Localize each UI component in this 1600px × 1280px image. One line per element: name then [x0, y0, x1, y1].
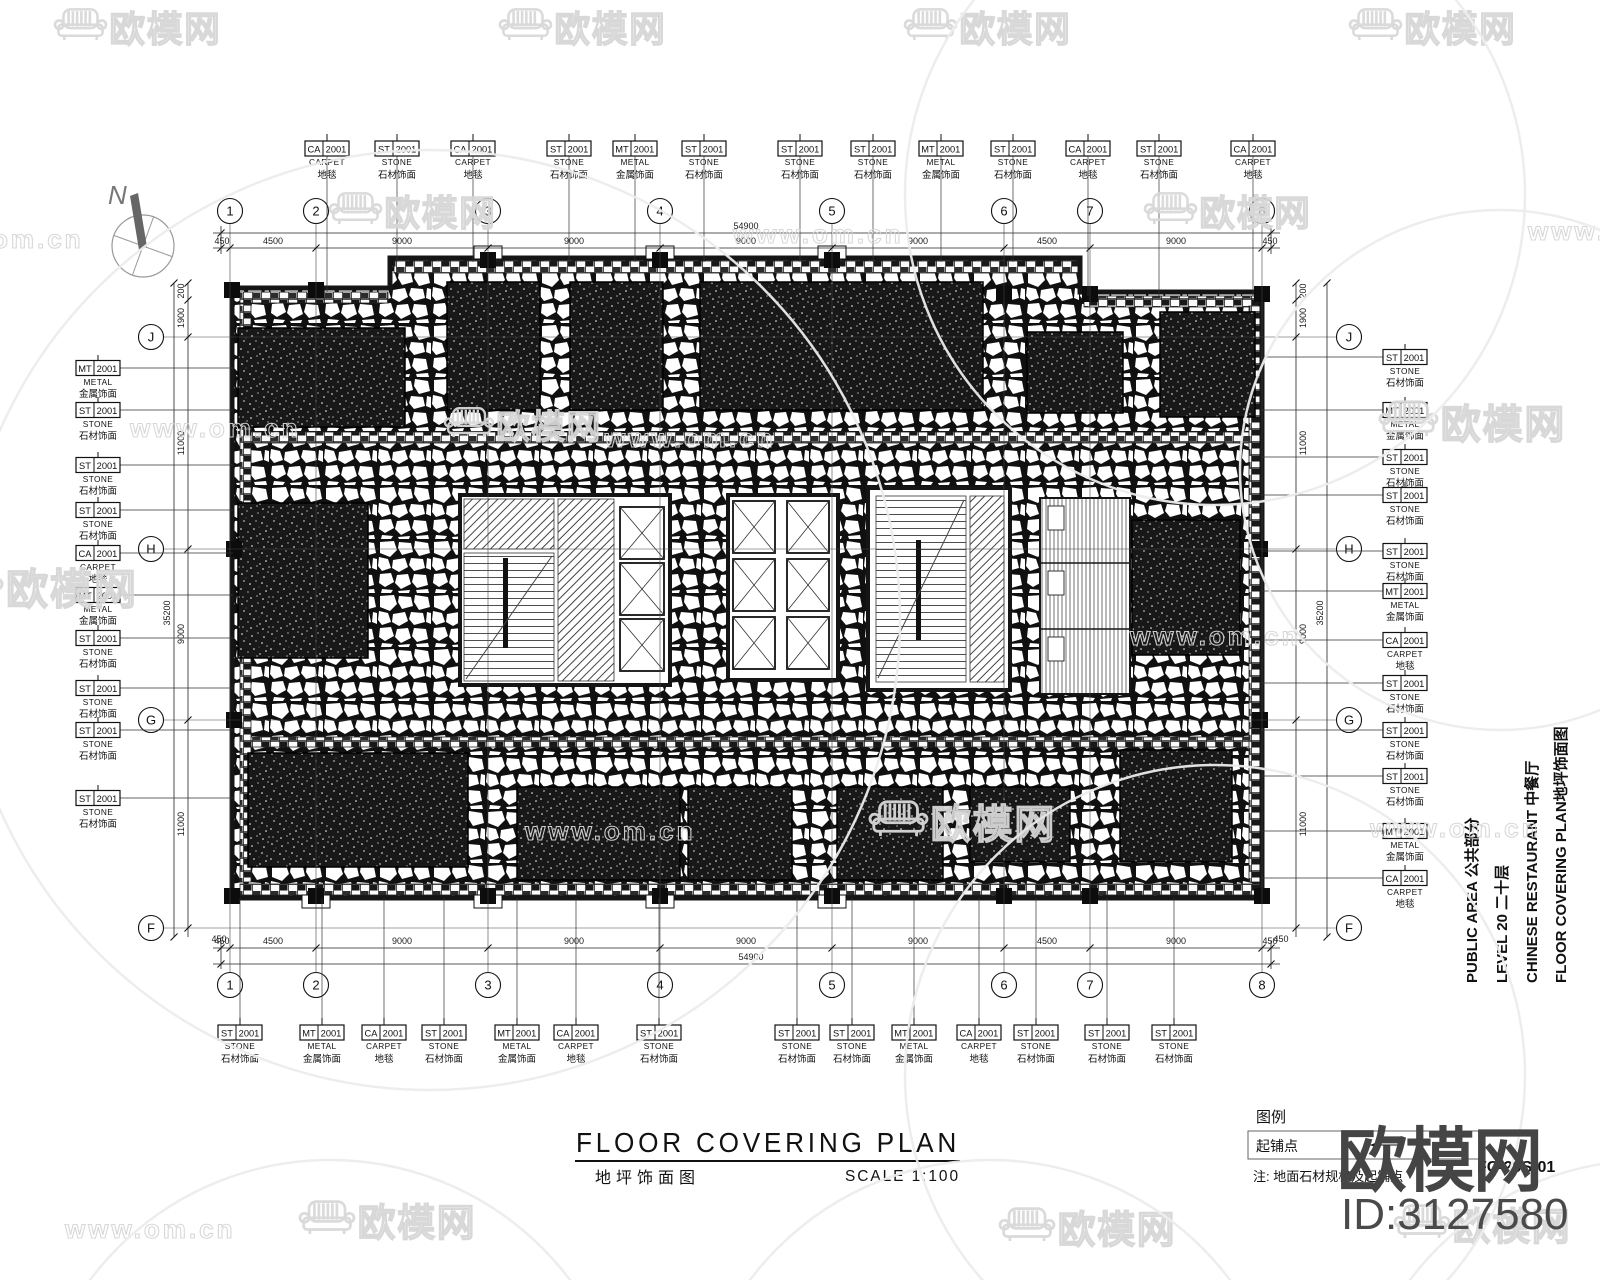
- material-tag-number: 2001: [1252, 145, 1273, 155]
- material-tag-cn: 石材饰面: [994, 169, 1032, 181]
- material-tag-code: ST: [79, 406, 91, 416]
- material-tag-cn: 地毯: [1243, 169, 1263, 181]
- dim-label: 9000: [564, 236, 584, 246]
- dim-label: 9000: [392, 236, 412, 246]
- side-title: LEVEL 20 二十层: [1493, 865, 1511, 983]
- dim-label: 9000: [908, 236, 928, 246]
- watermark-url: www.om.cn: [1369, 813, 1541, 843]
- material-tag-en: STONE: [382, 157, 412, 167]
- material-tag-en: CARPET: [1235, 157, 1271, 167]
- elevator-cell: [733, 501, 775, 553]
- material-tag-code: ST: [1140, 145, 1152, 155]
- material-tag-number: 2001: [851, 1029, 872, 1039]
- material-tag-number: 2001: [978, 1029, 999, 1039]
- side-title: FLOOR COVERING PLAN地坪饰面图: [1552, 726, 1570, 983]
- material-tag-en: STONE: [837, 1041, 867, 1051]
- dim-label: 9000: [908, 936, 928, 946]
- elevator-cell: [733, 617, 775, 669]
- material-tag-code: ST: [994, 145, 1006, 155]
- material-tag-code: CA: [79, 549, 93, 559]
- material-tag-number: 2001: [1404, 679, 1425, 689]
- material-tag-en: CARPET: [455, 157, 491, 167]
- dim-label: 450: [1262, 236, 1277, 246]
- dim-label: 9000: [392, 936, 412, 946]
- grid-bubble-label: J: [1346, 330, 1353, 345]
- material-tag-code: CA: [1386, 874, 1400, 884]
- material-tag-number: 2001: [97, 794, 118, 804]
- material-tag: ST2001STONE石材饰面: [1261, 482, 1427, 527]
- watermark-logo: [0, 566, 138, 613]
- dim-label: 200: [176, 283, 186, 298]
- material-tag-en: STONE: [858, 157, 888, 167]
- elevator-cell: [620, 619, 664, 671]
- material-tag-cn: 石材饰面: [1140, 169, 1178, 181]
- material-tag-cn: 石材饰面: [1386, 796, 1424, 808]
- material-tag: MT2001METAL金属饰面: [495, 898, 539, 1065]
- material-tag-number: 2001: [1404, 491, 1425, 501]
- material-tag-en: METAL: [899, 1041, 928, 1051]
- dim-label: 4500: [263, 936, 283, 946]
- material-tag-en: METAL: [620, 157, 649, 167]
- material-tag-number: 2001: [97, 726, 118, 736]
- material-tag-cn: 石材饰面: [79, 818, 117, 830]
- material-tag-code: ST: [833, 1029, 845, 1039]
- material-tag-en: STONE: [1021, 1041, 1051, 1051]
- north-needle: [130, 193, 147, 250]
- watermark-url: www.om.cn: [64, 1214, 236, 1244]
- material-tag-en: STONE: [83, 697, 113, 707]
- dim-label: 450: [214, 236, 229, 246]
- grid-bubble-label: 7: [1086, 204, 1093, 219]
- material-tag-en: STONE: [1390, 466, 1420, 476]
- dim-label: 9000: [736, 936, 756, 946]
- material-tag-cn: 石材饰面: [685, 169, 723, 181]
- watermark-url: www.om.cn: [1129, 621, 1301, 651]
- grid-bubble-label: F: [147, 921, 155, 936]
- material-tag-number: 2001: [1404, 772, 1425, 782]
- material-tag: ST2001STONE石材饰面: [1014, 898, 1058, 1065]
- watermark-logo: [905, 9, 1072, 49]
- dim-label: 9000: [1166, 236, 1186, 246]
- material-tag-number: 2001: [634, 145, 655, 155]
- material-tag-code: CA: [1386, 636, 1400, 646]
- side-title: CHINESE RESTAURANT 中餐厅: [1523, 761, 1541, 983]
- legend-heading: 图例: [1256, 1109, 1286, 1126]
- material-tag-cn: 石材饰面: [833, 1053, 871, 1065]
- grid-bubble-label: F: [1345, 921, 1353, 936]
- material-tag-cn: 石材饰面: [854, 169, 892, 181]
- material-tag-code: ST: [778, 1029, 790, 1039]
- material-tag: ST2001STONE石材饰面: [1137, 134, 1181, 296]
- material-tag: CA2001CARPET地毯: [1261, 865, 1427, 910]
- watermark-url: www.om.cn: [524, 816, 696, 846]
- dim-total-label: 35200: [162, 600, 172, 625]
- material-tag-en: STONE: [554, 157, 584, 167]
- material-tag-en: METAL: [1390, 600, 1419, 610]
- material-tag-cn: 金属饰面: [922, 169, 960, 181]
- material-tag-cn: 石材饰面: [1155, 1053, 1193, 1065]
- material-tag-en: CARPET: [1387, 649, 1423, 659]
- material-tag-en: STONE: [1144, 157, 1174, 167]
- material-tag-code: ST: [1386, 453, 1398, 463]
- material-tag-en: STONE: [83, 474, 113, 484]
- carpet-room: [688, 787, 792, 880]
- material-tag: ST2001STONE石材饰面: [991, 134, 1035, 262]
- watermark-url: www.om.cn: [604, 423, 776, 453]
- material-tag-cn: 金属饰面: [303, 1053, 341, 1065]
- carpet-room: [570, 282, 663, 410]
- material-tag-code: MT: [894, 1029, 908, 1039]
- dim-label: 11000: [1298, 431, 1308, 455]
- material-tag: ST2001STONE石材饰面: [775, 898, 819, 1065]
- material-tag-code: ST: [1386, 353, 1398, 363]
- material-tag-cn: 石材饰面: [79, 485, 117, 497]
- watermark-url: www.om.cn: [129, 413, 301, 443]
- dim-label: 450: [1273, 934, 1288, 944]
- material-tag-number: 2001: [796, 1029, 817, 1039]
- dim-label: 1900: [176, 308, 186, 328]
- material-tag-number: 2001: [1012, 145, 1033, 155]
- material-tag-en: STONE: [1390, 785, 1420, 795]
- material-tag-number: 2001: [913, 1029, 934, 1039]
- material-tag-number: 2001: [1404, 587, 1425, 597]
- watermark-circle: [0, 1160, 30, 1280]
- dim-label: 4500: [263, 236, 283, 246]
- material-tag-en: STONE: [998, 157, 1028, 167]
- material-tag-number: 2001: [321, 1029, 342, 1039]
- material-tag-en: STONE: [83, 419, 113, 429]
- cad-floor-plan-sheet: 欧模网: [0, 0, 1600, 1280]
- material-tag-en: CARPET: [961, 1041, 997, 1051]
- material-tag-number: 2001: [1035, 1029, 1056, 1039]
- material-tag-cn: 石材饰面: [1017, 1053, 1055, 1065]
- dim-label: 11000: [176, 812, 186, 836]
- watermark-url: www.om.cn: [1527, 216, 1600, 246]
- grid-bubble-label: J: [148, 330, 155, 345]
- material-tag-cn: 地毯: [317, 169, 337, 181]
- material-tag-number: 2001: [97, 549, 118, 559]
- wc-block: [1040, 498, 1130, 694]
- material-tag-number: 2001: [1404, 874, 1425, 884]
- material-tag: ST2001STONE石材饰面: [682, 134, 726, 262]
- material-tag-code: ST: [1386, 547, 1398, 557]
- material-tag-code: ST: [221, 1029, 233, 1039]
- material-tag-number: 2001: [1158, 145, 1179, 155]
- grid-bubble-label: 4: [656, 978, 663, 993]
- material-tag-en: STONE: [1390, 560, 1420, 570]
- material-tag: ST2001STONE石材饰面: [1261, 763, 1427, 808]
- material-tag-cn: 金属饰面: [498, 1053, 536, 1065]
- material-tag-cn: 石材饰面: [1386, 377, 1424, 389]
- material-tag-en: CARPET: [558, 1041, 594, 1051]
- watermark-logo: [1000, 1209, 1176, 1252]
- grid-bubble-label: H: [1344, 542, 1353, 557]
- material-tag-cn: 金属饰面: [1386, 611, 1424, 623]
- material-tag-code: ST: [79, 794, 91, 804]
- side-titles: PUBLIC AREA 公共部分 LEVEL 20 二十层 CHINESE RE…: [1463, 726, 1570, 983]
- material-tag-code: CA: [365, 1029, 379, 1039]
- material-tag-number: 2001: [703, 145, 724, 155]
- material-tag-cn: 石材饰面: [781, 169, 819, 181]
- sheet-subtitle-cn: 地坪饰面图: [595, 1169, 700, 1187]
- material-tag-number: 2001: [1087, 145, 1108, 155]
- material-tag-cn: 金属饰面: [616, 169, 654, 181]
- material-tag-code: MT: [302, 1029, 316, 1039]
- material-tag-code: ST: [854, 145, 866, 155]
- material-tag-cn: 石材饰面: [1386, 750, 1424, 762]
- elevator-cell: [733, 559, 775, 611]
- material-tag-en: CARPET: [1070, 157, 1106, 167]
- material-tag-en: STONE: [1092, 1041, 1122, 1051]
- material-tag-en: STONE: [83, 739, 113, 749]
- dim-label: 450: [211, 934, 226, 944]
- material-tag-number: 2001: [97, 461, 118, 471]
- material-tag-cn: 石材饰面: [640, 1053, 678, 1065]
- carpet-room: [1027, 332, 1123, 413]
- material-tag-code: ST: [550, 145, 562, 155]
- dim-label: 4500: [1037, 936, 1057, 946]
- material-tag-en: STONE: [429, 1041, 459, 1051]
- material-tag-code: ST: [1386, 726, 1398, 736]
- grid-bubble-label: 2: [312, 204, 319, 219]
- dim-total-label: 35200: [1315, 600, 1325, 625]
- carpet-room: [238, 503, 368, 658]
- material-tag-code: ST: [1017, 1029, 1029, 1039]
- material-tag: ST2001STONE石材饰面: [547, 134, 591, 262]
- material-tag-number: 2001: [1404, 547, 1425, 557]
- material-tag-cn: 石材饰面: [378, 169, 416, 181]
- dim-label: 11000: [1298, 812, 1308, 836]
- material-tag-cn: 金属饰面: [1386, 851, 1424, 863]
- material-tag: ST2001STONE石材饰面: [76, 497, 233, 542]
- hatch-room: [970, 496, 1004, 682]
- material-tag-number: 2001: [1404, 353, 1425, 363]
- material-tag-en: CARPET: [1387, 887, 1423, 897]
- material-tag-code: ST: [685, 145, 697, 155]
- material-tag-number: 2001: [1173, 1029, 1194, 1039]
- material-tag-code: ST: [1386, 772, 1398, 782]
- material-tag-number: 2001: [326, 145, 347, 155]
- material-tag-code: MT: [497, 1029, 511, 1039]
- scale-label: SCALE 1:100: [845, 1168, 960, 1185]
- grid-bubble-label: 8: [1258, 978, 1265, 993]
- title-block: FLOOR COVERING PLAN 地坪饰面图 SCALE 1:100: [575, 1127, 960, 1187]
- elevator-cell: [620, 507, 664, 559]
- material-tag-code: ST: [425, 1029, 437, 1039]
- material-tag-cn: 石材饰面: [425, 1053, 463, 1065]
- material-tag-en: STONE: [644, 1041, 674, 1051]
- material-tag: ST2001STONE石材饰面: [1152, 898, 1196, 1065]
- material-tag-code: MT: [921, 145, 935, 155]
- material-tag-en: METAL: [502, 1041, 531, 1051]
- material-tag: CA2001CARPET地毯: [554, 898, 598, 1065]
- material-tag-number: 2001: [97, 684, 118, 694]
- material-tag-number: 2001: [799, 145, 820, 155]
- hatch-room: [464, 499, 554, 549]
- material-tag-code: ST: [79, 506, 91, 516]
- material-tag-en: STONE: [83, 807, 113, 817]
- material-tag-en: STONE: [1390, 504, 1420, 514]
- grid-bubble-label: 3: [484, 978, 491, 993]
- material-tag-number: 2001: [575, 1029, 596, 1039]
- elevator-cell: [787, 559, 829, 611]
- material-tag-number: 2001: [940, 145, 961, 155]
- grid-bubble-label: 6: [1000, 204, 1007, 219]
- material-tag-number: 2001: [97, 406, 118, 416]
- material-tag-code: ST: [79, 461, 91, 471]
- material-tag-cn: 石材饰面: [79, 750, 117, 762]
- material-tag-en: METAL: [83, 377, 112, 387]
- material-tag-en: METAL: [926, 157, 955, 167]
- grid-bubble-label: 5: [828, 978, 835, 993]
- material-tag-en: STONE: [1390, 366, 1420, 376]
- material-tag-en: STONE: [83, 519, 113, 529]
- carpet-room: [248, 753, 468, 867]
- material-tag-code: CA: [308, 145, 322, 155]
- material-tag: MT2001METAL金属饰面: [76, 355, 233, 400]
- grid-bubble-label: 6: [1000, 978, 1007, 993]
- carpet-room: [447, 282, 540, 410]
- material-tag-code: CA: [960, 1029, 974, 1039]
- grid-bubble-label: 1: [226, 204, 233, 219]
- watermark-circle: [690, 1160, 1290, 1280]
- watermark-logo: [330, 193, 497, 233]
- legend-start-point: 起铺点: [1256, 1138, 1298, 1154]
- material-tag: ST2001STONE石材饰面: [76, 452, 233, 497]
- material-tag-code: MT: [1385, 587, 1399, 597]
- material-tag-code: ST: [1386, 491, 1398, 501]
- grid-bubble-label: G: [1344, 713, 1354, 728]
- material-tag-number: 2001: [97, 506, 118, 516]
- watermark-logo: [55, 9, 222, 49]
- material-tag-number: 2001: [1404, 636, 1425, 646]
- elevator-cell: [787, 501, 829, 553]
- dim-label: 1900: [1298, 308, 1308, 328]
- material-tag-number: 2001: [97, 634, 118, 644]
- north-label: N: [108, 180, 127, 210]
- material-tag-code: ST: [1155, 1029, 1167, 1039]
- material-tag-code: ST: [1088, 1029, 1100, 1039]
- material-tag-cn: 地毯: [374, 1053, 394, 1065]
- grid-bubble-label: 1: [226, 978, 233, 993]
- grid-bubble-label: H: [146, 542, 155, 557]
- material-tag-cn: 地毯: [1078, 169, 1098, 181]
- dim-label: 9000: [564, 936, 584, 946]
- material-tag-number: 2001: [97, 364, 118, 374]
- grid-bubble-label: 2: [312, 978, 319, 993]
- material-tag-cn: 地毯: [1395, 898, 1415, 910]
- grid-bubble-label: G: [146, 713, 156, 728]
- material-tag-cn: 地毯: [463, 169, 483, 181]
- site-watermark: 欧模网 ID:3127580: [1337, 1122, 1569, 1239]
- material-tag: CA2001CARPET地毯: [362, 898, 406, 1065]
- watermark-url: www.om.cn: [732, 219, 904, 249]
- material-tag-number: 2001: [516, 1029, 537, 1039]
- material-tag-code: ST: [79, 726, 91, 736]
- plan-body: [224, 246, 1270, 908]
- material-tag-cn: 石材饰面: [778, 1053, 816, 1065]
- material-tag-en: STONE: [1390, 692, 1420, 702]
- material-tag-code: ST: [781, 145, 793, 155]
- sheet-title: FLOOR COVERING PLAN: [576, 1127, 960, 1158]
- material-tag-number: 2001: [239, 1029, 260, 1039]
- material-tag-number: 2001: [568, 145, 589, 155]
- material-tag-code: MT: [615, 145, 629, 155]
- material-tag-en: METAL: [307, 1041, 336, 1051]
- material-tag-number: 2001: [1106, 1029, 1127, 1039]
- material-tag-code: MT: [78, 364, 92, 374]
- elevator-cell: [787, 617, 829, 669]
- material-tag-code: CA: [557, 1029, 571, 1039]
- column: [224, 282, 240, 298]
- material-tag-code: ST: [1386, 679, 1398, 689]
- material-tag-number: 2001: [872, 145, 893, 155]
- watermark-logo: [300, 1202, 476, 1245]
- material-tag: ST2001STONE石材饰面: [1261, 444, 1427, 489]
- material-tag-en: STONE: [785, 157, 815, 167]
- grid-bubble-label: 5: [828, 204, 835, 219]
- material-tag-cn: 石材饰面: [1088, 1053, 1126, 1065]
- watermark-url-short: om.cn: [0, 224, 84, 254]
- material-tag: ST2001STONE石材饰面: [422, 898, 466, 1065]
- elevator-cell: [620, 563, 664, 615]
- carpet-room: [1160, 312, 1255, 417]
- material-tag-en: STONE: [689, 157, 719, 167]
- material-tag-en: CARPET: [366, 1041, 402, 1051]
- column: [224, 888, 240, 904]
- material-tag-en: STONE: [1390, 739, 1420, 749]
- material-tag-number: 2001: [443, 1029, 464, 1039]
- watermark-logo: [500, 9, 667, 49]
- material-tag-cn: 金属饰面: [895, 1053, 933, 1065]
- material-tag-code: ST: [79, 684, 91, 694]
- material-tag-cn: 石材饰面: [79, 658, 117, 670]
- material-tag-en: STONE: [1159, 1041, 1189, 1051]
- material-tag-number: 2001: [1404, 453, 1425, 463]
- material-tag-cn: 地毯: [969, 1053, 989, 1065]
- dim-label: 9000: [1166, 936, 1186, 946]
- site-watermark-id: ID:3127580: [1341, 1190, 1569, 1239]
- hatch-room: [558, 499, 614, 681]
- material-tag-en: STONE: [782, 1041, 812, 1051]
- material-tag-cn: 石材饰面: [1386, 515, 1424, 527]
- material-tag-en: STONE: [83, 647, 113, 657]
- dim-label: 9000: [176, 624, 186, 644]
- material-tag-number: 2001: [1404, 726, 1425, 736]
- material-tag: MT2001METAL金属饰面: [892, 898, 936, 1065]
- material-tag: ST2001STONE石材饰面: [1261, 344, 1427, 389]
- floor-plan-drawing: 欧模网: [0, 0, 1600, 1280]
- watermark-logo: [1350, 9, 1517, 49]
- material-tag: ST2001STONE石材饰面: [76, 785, 233, 830]
- material-tag-number: 2001: [383, 1029, 404, 1039]
- material-tag: ST2001STONE石材饰面: [76, 625, 233, 670]
- watermark-logo: [1145, 193, 1312, 233]
- material-tag-code: CA: [1234, 145, 1248, 155]
- material-tag-cn: 石材饰面: [79, 430, 117, 442]
- dim-label: 4500: [1037, 236, 1057, 246]
- site-watermark-brand: 欧模网: [1337, 1122, 1541, 1200]
- material-tag-code: CA: [1069, 145, 1083, 155]
- material-tag-code: ST: [79, 634, 91, 644]
- grid-bubble-label: 7: [1086, 978, 1093, 993]
